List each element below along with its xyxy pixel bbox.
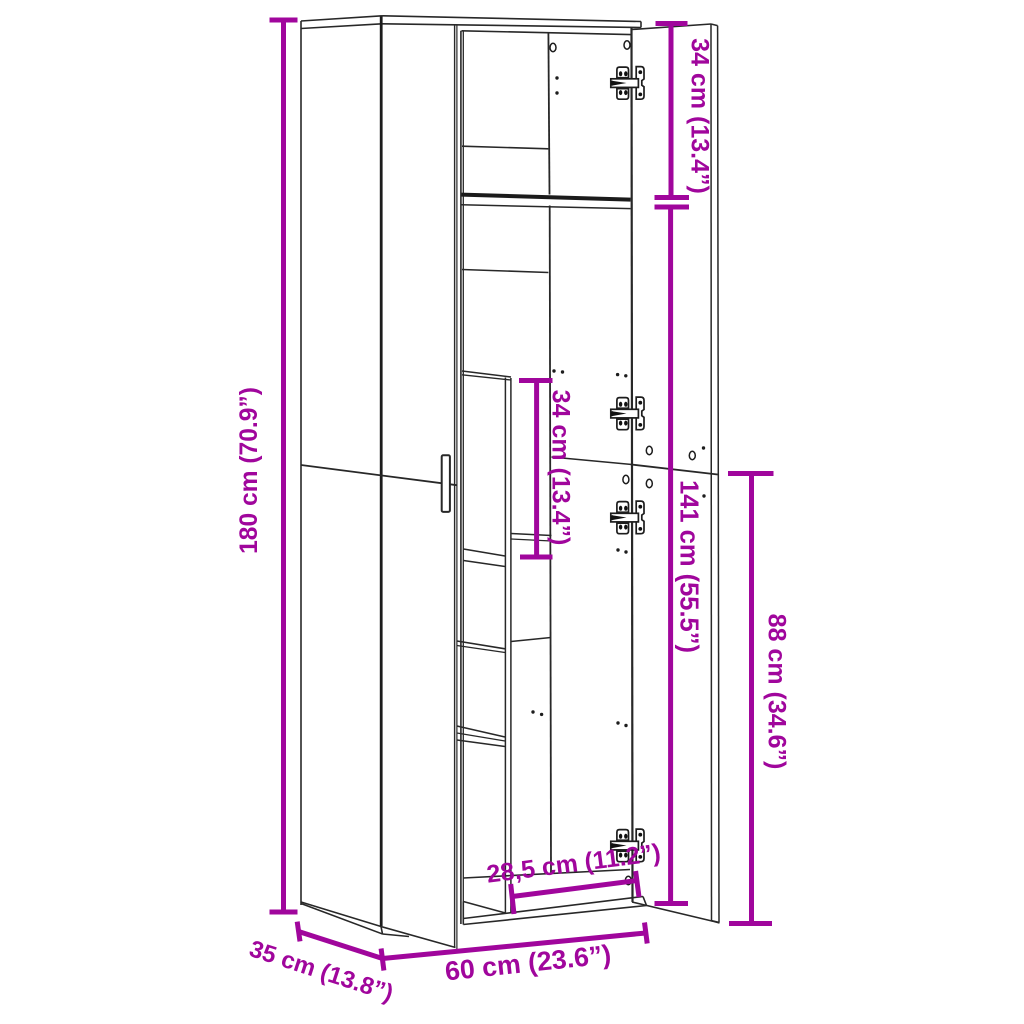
- svg-text:34 cm (13.4”): 34 cm (13.4”): [546, 390, 574, 546]
- svg-text:34 cm (13.4”): 34 cm (13.4”): [685, 38, 713, 194]
- svg-text:180 cm (70.9”): 180 cm (70.9”): [236, 387, 263, 554]
- svg-text:141 cm (55.5”): 141 cm (55.5”): [674, 480, 702, 653]
- svg-text:35 cm (13.8”): 35 cm (13.8”): [246, 935, 396, 1007]
- svg-text:88 cm (34.6”): 88 cm (34.6”): [763, 614, 791, 770]
